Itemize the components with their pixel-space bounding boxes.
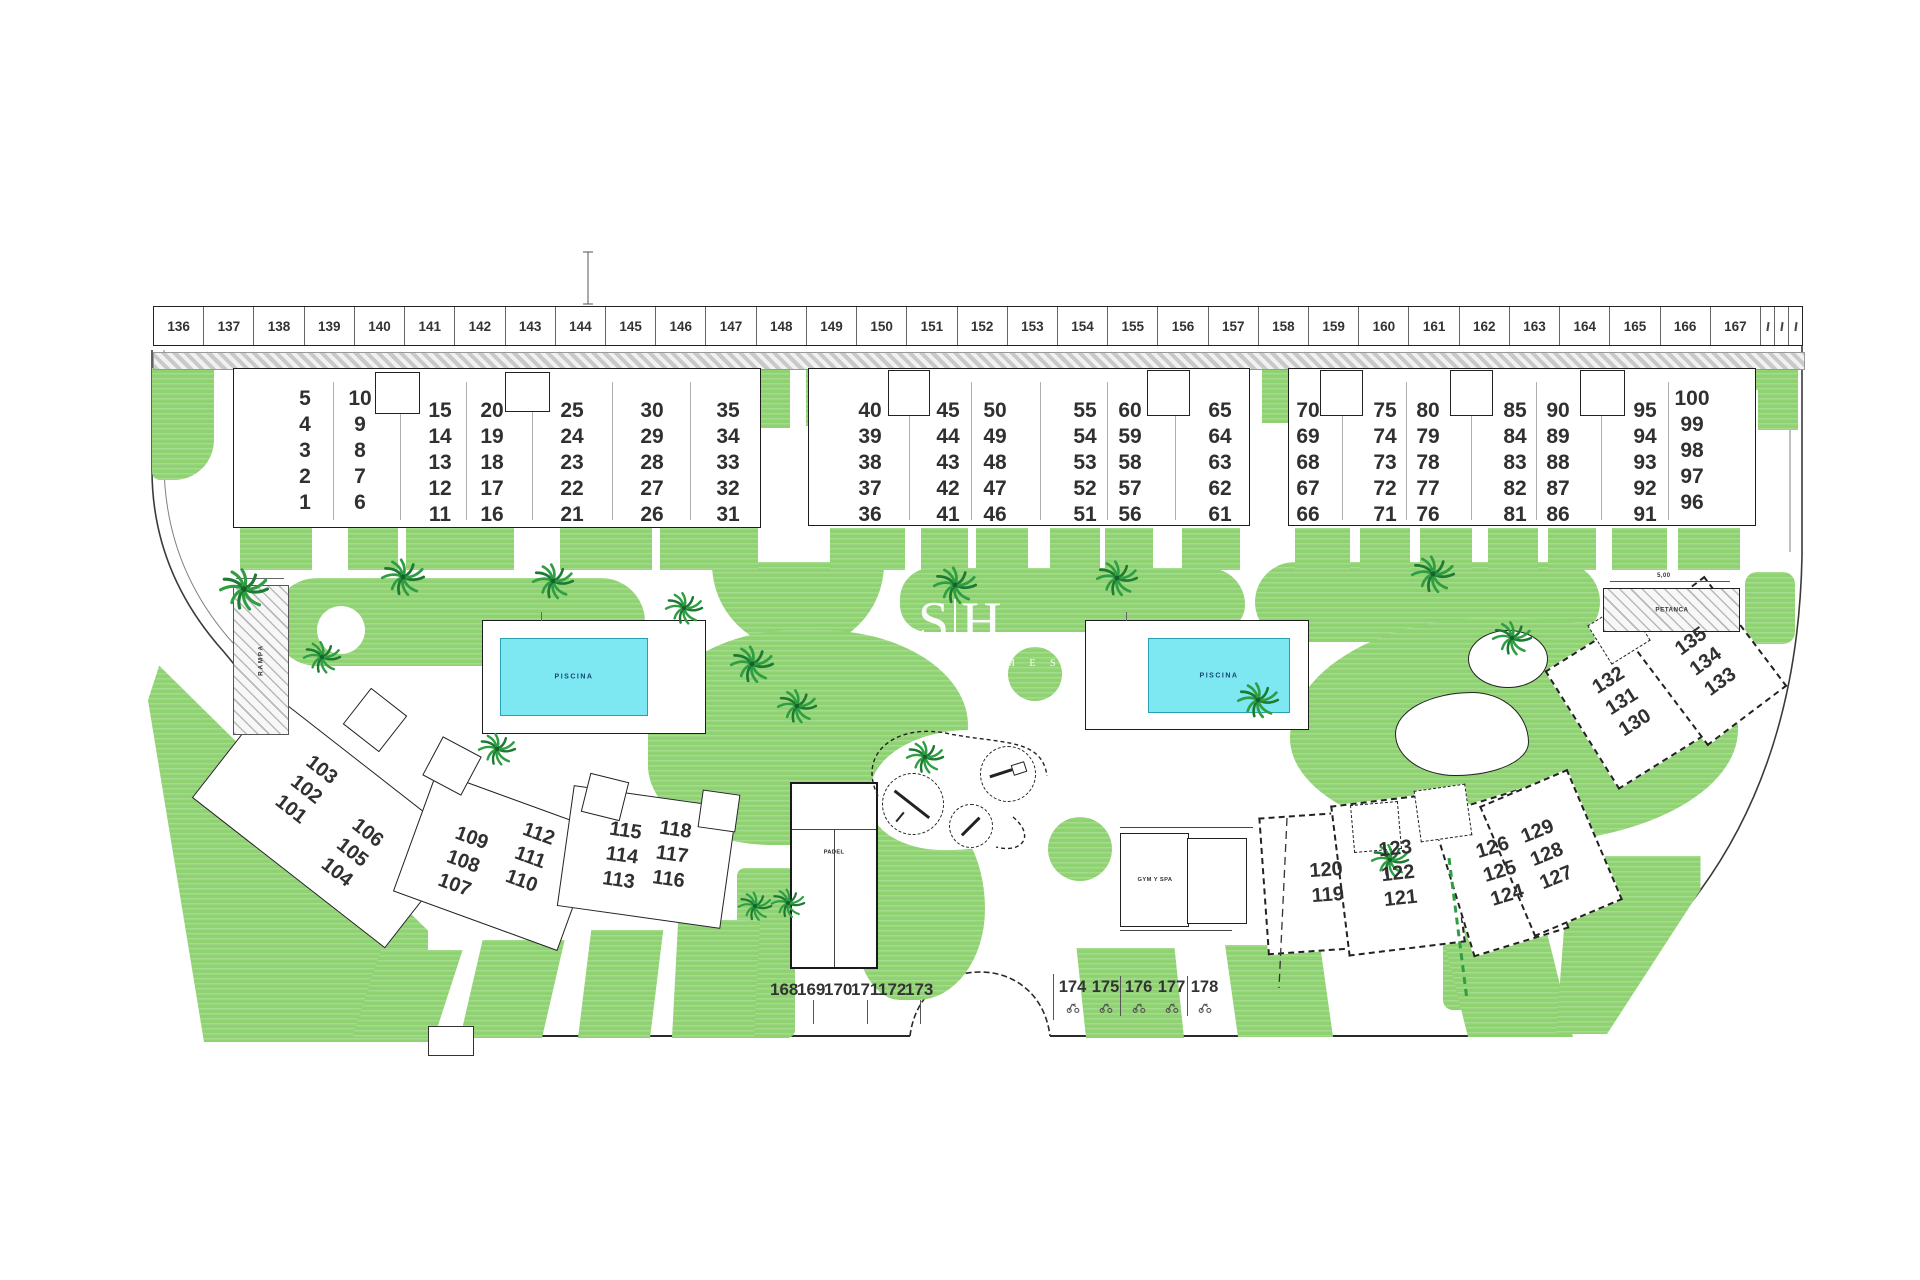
- palm-tree-icon: [1095, 556, 1139, 600]
- playground-path-2: [996, 817, 1025, 849]
- divider-tick: [1187, 976, 1188, 1016]
- unit-column: 95 94 93 92 91: [1623, 398, 1667, 528]
- unit-column: 65 64 63 62 61: [1198, 398, 1242, 528]
- unit-column: 20 19 18 17 16: [470, 398, 514, 528]
- palm-tree-icon: [218, 563, 270, 615]
- palm-tree-icon: [905, 737, 945, 777]
- scooter-icon: [1165, 999, 1179, 1011]
- palm-tree-icon: [776, 685, 818, 727]
- divider-tick: [813, 1000, 814, 1024]
- unit-column: 10 9 8 7 6: [338, 386, 382, 516]
- scooter-icon: [1066, 999, 1080, 1011]
- parking-space: 168: [770, 980, 797, 1000]
- scooter-icon: [1198, 999, 1212, 1011]
- unit-column: 25 24 23 22 21: [550, 398, 594, 528]
- parking-space: 171: [851, 980, 878, 1000]
- parking-space: 170: [824, 980, 851, 1000]
- unit-column: 75 74 73 72 71: [1363, 398, 1407, 528]
- scooter-icon: [1099, 999, 1113, 1011]
- parking-space: 176: [1122, 978, 1155, 1011]
- parking-space: 172: [878, 980, 905, 1000]
- palm-tree-icon: [302, 637, 342, 677]
- palm-tree-icon: [380, 554, 426, 600]
- parking-space: 175: [1089, 978, 1122, 1011]
- unit-column: 85 84 83 82 81: [1493, 398, 1537, 528]
- unit-column: 55 54 53 52 51: [1063, 398, 1107, 528]
- parking-space-number: 174: [1059, 978, 1087, 997]
- unit-column: 70 69 68 67 66: [1286, 398, 1330, 528]
- parking-space-number: 175: [1092, 978, 1120, 997]
- unit-column: 60 59 58 57 56: [1108, 398, 1152, 528]
- hedge-dashed-line: [1449, 858, 1467, 1000]
- parking-space: 173: [905, 980, 932, 1000]
- palm-tree-icon: [737, 888, 773, 924]
- parking-row-left: 168169170171172173: [770, 980, 932, 1000]
- parking-space: 178: [1188, 978, 1221, 1011]
- divider-tick: [1053, 974, 1054, 1020]
- parking-space-number: 177: [1158, 978, 1186, 997]
- watermark-divider: [954, 599, 956, 645]
- watermark-subtext: M E S: [1006, 658, 1062, 669]
- unit-column: 80 79 78 77 76: [1406, 398, 1450, 528]
- playground-path: [872, 731, 1047, 796]
- parking-space: 177: [1155, 978, 1188, 1011]
- unit-column: 45 44 43 42 41: [926, 398, 970, 528]
- palm-tree-icon: [729, 641, 775, 687]
- divider-tick: [867, 1000, 868, 1024]
- watermark-logo: S H: [918, 596, 1002, 648]
- divider-tick: [1120, 976, 1121, 1016]
- unit-column: 35 34 33 32 31: [706, 398, 750, 528]
- parking-row-right: 174175176177178: [1056, 978, 1221, 1011]
- palm-tree-icon: [1491, 617, 1533, 659]
- palm-tree-icon: [1410, 551, 1456, 597]
- parking-space-number: 178: [1191, 978, 1219, 997]
- palm-tree-icon: [531, 559, 575, 603]
- divider-tick: [920, 1000, 921, 1024]
- palm-tree-icon: [770, 885, 806, 921]
- parking-space: 174: [1056, 978, 1089, 1011]
- parking-space: 169: [797, 980, 824, 1000]
- gym-dashed-line: [1279, 818, 1287, 988]
- scooter-icon: [1132, 999, 1146, 1011]
- unit-column: 15 14 13 12 11: [418, 398, 462, 528]
- unit-column: 90 89 88 87 86: [1536, 398, 1580, 528]
- unit-column: 30 29 28 27 26: [630, 398, 674, 528]
- unit-stack: 123 122 121: [1359, 833, 1436, 915]
- palm-tree-icon: [664, 588, 704, 628]
- watermark-letter-h: H: [961, 596, 1001, 648]
- unit-stack: 118 117 116: [632, 813, 712, 897]
- unit-stack: 120 119: [1290, 856, 1363, 911]
- palm-tree-icon: [477, 729, 517, 769]
- unit-column: 5 4 3 2 1: [283, 386, 327, 516]
- watermark-letter-s: S: [918, 596, 949, 648]
- parking-space-number: 176: [1125, 978, 1153, 997]
- unit-column: 100 99 98 97 96: [1670, 386, 1714, 516]
- unit-column: 40 39 38 37 36: [848, 398, 892, 528]
- site-plan: PISCINA PISCINA PADEL GYM Y SPA PETANCA …: [0, 0, 1920, 1280]
- unit-column: 50 49 48 47 46: [973, 398, 1017, 528]
- palm-tree-icon: [1236, 678, 1280, 722]
